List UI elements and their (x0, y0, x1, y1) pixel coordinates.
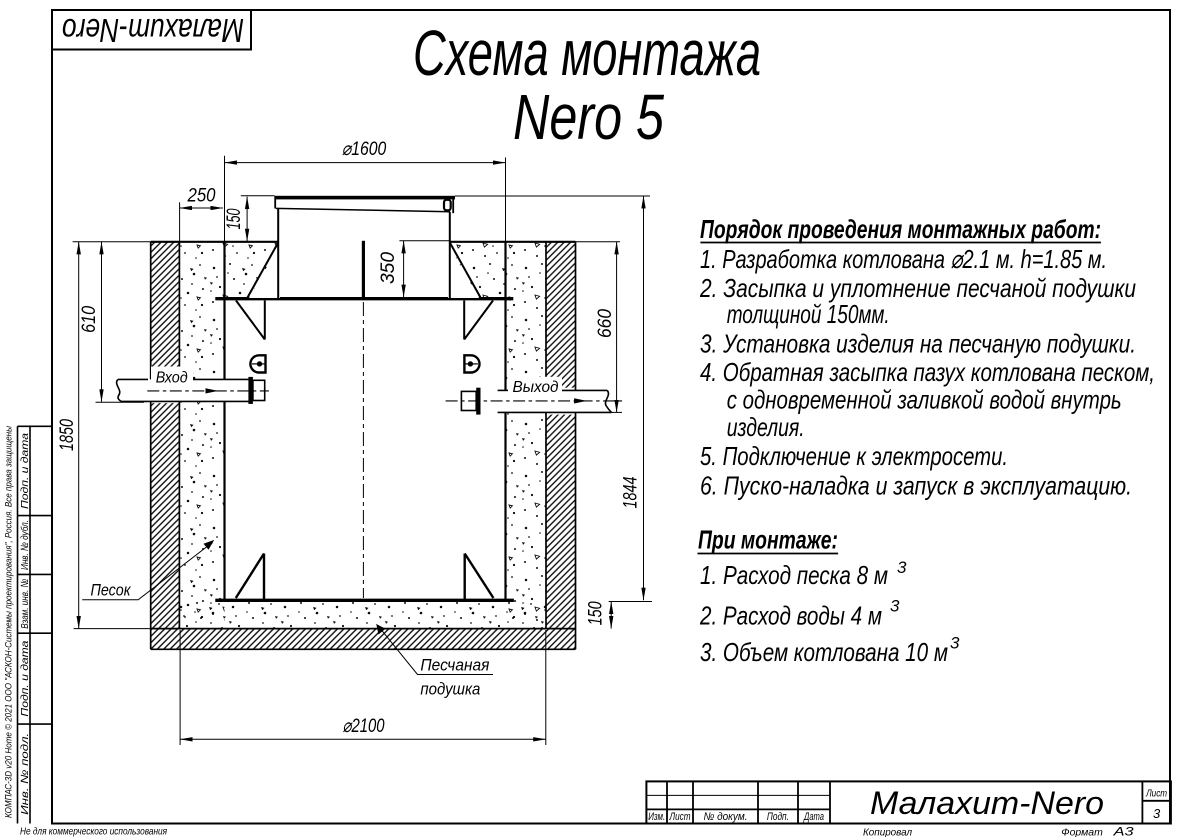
svg-text:6. Пуско-наладка и запуск в эк: 6. Пуско-наладка и запуск в эксплуатацию… (700, 471, 1132, 501)
svg-text:с одновременной заливкой водой: с одновременной заливкой водой внутрь (727, 385, 1122, 415)
svg-text:Схема монтажа: Схема монтажа (413, 17, 761, 89)
svg-text:Лист: Лист (1145, 788, 1167, 800)
svg-text:Инв. № подл.: Инв. № подл. (19, 733, 31, 815)
svg-text:Дата: Дата (803, 811, 824, 823)
svg-text:⌀1600: ⌀1600 (342, 139, 387, 160)
svg-text:⌀2100: ⌀2100 (343, 716, 385, 737)
svg-text:3. Объем котлована 10 м: 3. Объем котлована 10 м (700, 637, 948, 667)
svg-text:Не для коммерческого использов: Не для коммерческого использования (20, 826, 167, 837)
svg-text:Формат: Формат (1061, 827, 1103, 837)
svg-text:4. Обратная засыпка пазух котл: 4. Обратная засыпка пазух котлована песк… (700, 357, 1155, 387)
svg-text:150: 150 (224, 208, 245, 229)
svg-text:150: 150 (585, 601, 606, 625)
svg-text:Подп. и дата: Подп. и дата (19, 640, 31, 716)
svg-text:Лист: Лист (669, 811, 691, 823)
svg-text:1844: 1844 (620, 477, 641, 509)
svg-text:Песок: Песок (91, 582, 132, 600)
svg-text:Взам. инв. №: Взам. инв. № (19, 579, 31, 629)
svg-text:Выход: Выход (513, 379, 559, 396)
svg-text:Nero 5: Nero 5 (513, 81, 664, 153)
svg-text:3. Установка изделия на песчан: 3. Установка изделия на песчаную подушки… (700, 328, 1136, 358)
svg-text:610: 610 (79, 306, 100, 333)
svg-text:1850: 1850 (57, 419, 78, 451)
svg-text:Инв. № дубл.: Инв. № дубл. (19, 520, 31, 570)
svg-text:При монтаже:: При монтаже: (698, 525, 838, 555)
svg-text:Порядок проведения монтажных р: Порядок проведения монтажных работ: (700, 214, 1101, 244)
svg-text:подушка: подушка (420, 681, 480, 699)
svg-text:Вход: Вход (156, 370, 188, 387)
svg-text:1. Разработка котлована ⌀2.1 м: 1. Разработка котлована ⌀2.1 м. h=1.85 м… (700, 244, 1107, 274)
svg-text:250: 250 (187, 186, 216, 207)
svg-text:изделия.: изделия. (727, 412, 805, 442)
svg-text:Подп. и дата: Подп. и дата (19, 433, 31, 509)
svg-text:А3: А3 (1112, 827, 1134, 837)
svg-text:5. Подключение к электросети.: 5. Подключение к электросети. (700, 441, 1008, 471)
svg-text:Подп.: Подп. (767, 811, 789, 823)
svg-text:КОМПАС-3D v20 Home © 2021 ООО: КОМПАС-3D v20 Home © 2021 ООО "АСКОН-Сис… (4, 426, 15, 818)
svg-text:3: 3 (897, 558, 907, 577)
svg-text:Изм.: Изм. (648, 811, 665, 823)
svg-text:3: 3 (890, 597, 900, 616)
svg-text:Песчаная: Песчаная (420, 657, 489, 675)
svg-text:Малахит-Nero: Малахит-Nero (62, 12, 244, 49)
svg-text:660: 660 (595, 309, 616, 338)
svg-text:3: 3 (1153, 806, 1161, 821)
svg-text:2. Расход воды 4 м: 2. Расход воды 4 м (699, 601, 882, 631)
svg-text:№ докум.: № докум. (704, 811, 748, 823)
svg-text:толщиной 150мм.: толщиной 150мм. (727, 299, 890, 329)
svg-text:1. Расход песка 8 м: 1. Расход песка 8 м (700, 560, 888, 590)
svg-text:Копировал: Копировал (863, 827, 912, 837)
svg-text:3: 3 (950, 634, 960, 653)
svg-text:Малахит-Nero: Малахит-Nero (870, 785, 1104, 821)
svg-text:350: 350 (378, 252, 399, 284)
